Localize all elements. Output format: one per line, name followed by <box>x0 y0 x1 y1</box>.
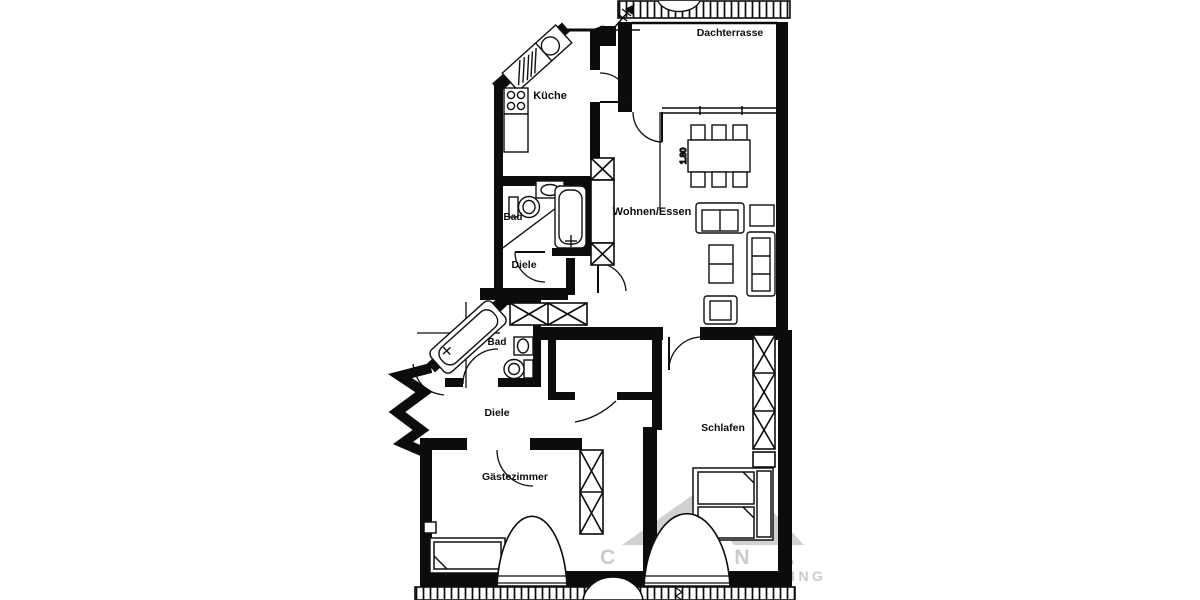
toilet-icon <box>504 360 533 379</box>
chair-icon <box>712 172 726 187</box>
room-label-wohnen-essen: Wohnen/Essen <box>613 206 692 218</box>
chair-icon <box>691 172 705 187</box>
room-label-diele-upper: Diele <box>511 259 536 271</box>
sofa-icon <box>747 232 775 296</box>
dimension-label: 1.80 <box>678 147 688 164</box>
stove-icon <box>504 88 528 114</box>
room-label-kueche: Küche <box>533 90 567 102</box>
wall-segment <box>420 438 467 450</box>
wall-segment <box>776 22 788 114</box>
room-label-gaestezimmer: Gästezimmer <box>482 471 548 483</box>
wardrobe-icon <box>580 450 603 534</box>
railing-icon <box>618 1 790 18</box>
terrace-railing <box>618 1 790 18</box>
floor-plan-drawing: COLNA IMMOBILIEN CONSULTING <box>0 0 1200 600</box>
wall-segment <box>552 248 588 256</box>
wall-segment <box>590 102 600 160</box>
sofa-icon <box>696 203 744 233</box>
room-label-bad-lower: Bad <box>488 337 507 348</box>
shaft-column <box>591 158 614 265</box>
washbasin-icon <box>514 337 533 355</box>
radiator-symbol <box>424 522 436 533</box>
shaft-icon <box>591 243 614 265</box>
room-label-diele-lower: Diele <box>484 407 509 419</box>
counter-rect <box>504 114 528 152</box>
wall-segment <box>566 258 575 295</box>
chair-icon <box>733 125 747 140</box>
wardrobe-icon <box>510 303 587 325</box>
chair-icon <box>712 125 726 140</box>
shaft-icon <box>591 158 614 180</box>
wall-segment <box>590 30 600 70</box>
wall-segment <box>548 392 575 400</box>
dining-table-icon <box>688 140 750 172</box>
chair-icon <box>691 125 705 140</box>
coffee-table-icon <box>709 245 733 283</box>
wall-segment <box>652 330 662 430</box>
room-label-bad-upper: Bad <box>504 212 523 223</box>
wall-segment <box>617 392 660 400</box>
room-label-schlafen: Schlafen <box>701 422 745 434</box>
wall-segment <box>445 378 463 387</box>
wall-segment <box>530 438 582 450</box>
duct-rect <box>591 180 614 243</box>
wall-segment <box>498 378 541 387</box>
room-label-dachterrasse: Dachterrasse <box>697 27 764 39</box>
wall-segment <box>548 338 556 398</box>
bathtub-icon <box>555 186 586 248</box>
wardrobe-icon <box>753 335 775 467</box>
side-table <box>750 205 774 226</box>
nightstand <box>753 452 775 467</box>
chair-icon <box>733 172 747 187</box>
armchair-icon <box>704 296 737 324</box>
wall-segment <box>778 330 792 578</box>
wall-segment <box>776 112 788 334</box>
wall-segment <box>494 84 503 300</box>
wall-segment <box>541 327 663 340</box>
floor-plan-page: COLNA IMMOBILIEN CONSULTING <box>0 0 1200 600</box>
